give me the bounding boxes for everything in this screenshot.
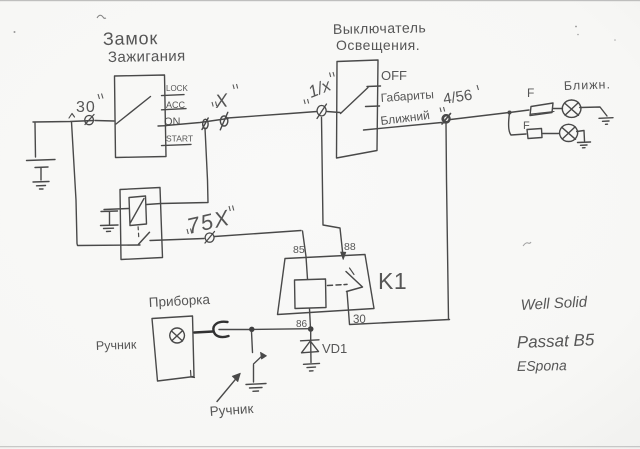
svg-text:Ближн.: Ближн.: [564, 77, 612, 93]
svg-text:F: F: [527, 86, 534, 100]
svg-text:88: 88: [344, 241, 356, 253]
svg-text:Ручник: Ручник: [96, 338, 137, 353]
svg-text:VD1: VD1: [322, 341, 347, 356]
svg-text:30: 30: [76, 99, 96, 116]
svg-text:Well Solid: Well Solid: [520, 294, 588, 314]
svg-text:Зажигания: Зажигания: [108, 48, 186, 66]
svg-text:K1: K1: [378, 268, 407, 294]
svg-text:Ручник: Ручник: [209, 401, 254, 419]
svg-text:OFF: OFF: [381, 68, 407, 83]
svg-text:Passat B5: Passat B5: [516, 330, 595, 352]
svg-text:Выключатель: Выключатель: [333, 19, 427, 37]
svg-text:ON: ON: [164, 116, 181, 128]
svg-text:Освещения.: Освещения.: [336, 37, 420, 53]
svg-text:30: 30: [353, 314, 366, 326]
svg-text:F: F: [523, 120, 530, 132]
svg-text:ESpona: ESpona: [517, 357, 567, 374]
svg-text:LOCK: LOCK: [166, 84, 188, 93]
svg-text:86: 86: [296, 319, 308, 330]
svg-text:85: 85: [293, 244, 305, 256]
svg-text:ACC: ACC: [166, 100, 186, 110]
svg-text:Замок: Замок: [103, 28, 158, 49]
svg-text:START: START: [166, 134, 193, 144]
